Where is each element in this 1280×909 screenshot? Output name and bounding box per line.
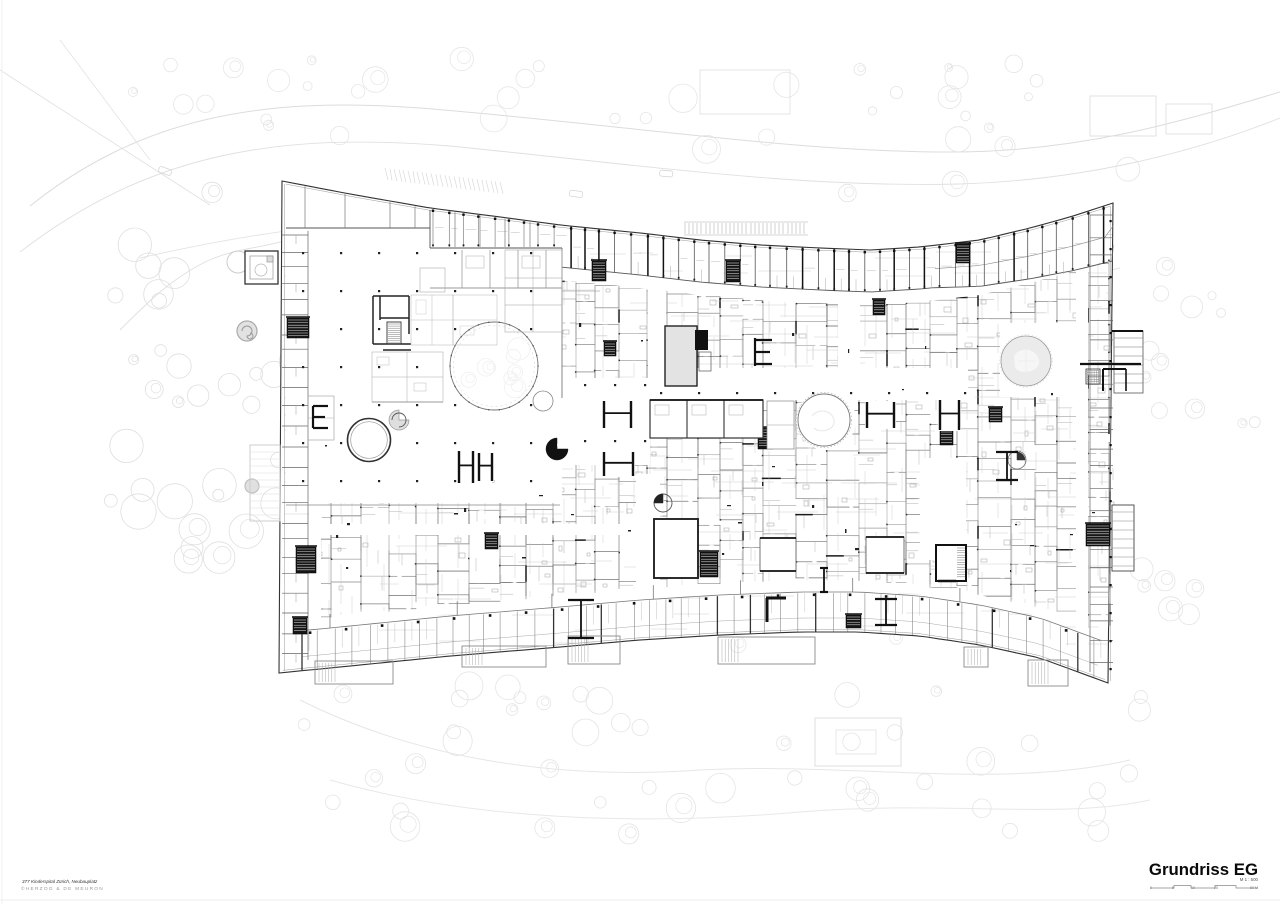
svg-text:10: 10: [1191, 886, 1195, 890]
svg-text:377 Kinderspital Zürich, Neuba: 377 Kinderspital Zürich, Neubauplatz: [22, 879, 98, 884]
svg-text:25: 25: [1214, 886, 1218, 890]
svg-text:M 1 : 500: M 1 : 500: [1240, 877, 1259, 882]
svg-text:0: 0: [1150, 886, 1152, 890]
svg-text:©HERZOG & DE MEURON: ©HERZOG & DE MEURON: [21, 885, 104, 892]
svg-text:5: 5: [1172, 886, 1174, 890]
svg-text:50 M: 50 M: [1250, 886, 1258, 890]
